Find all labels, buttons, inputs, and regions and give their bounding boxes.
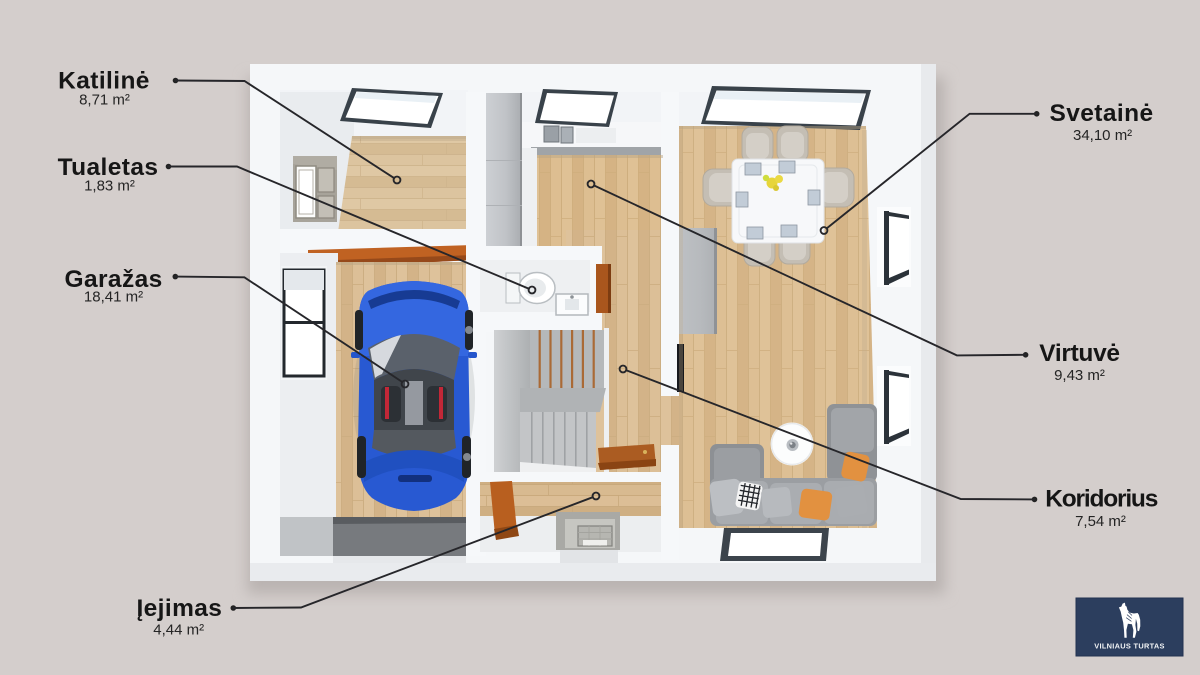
svg-text:9,43 m²: 9,43 m²: [1054, 367, 1105, 384]
svg-text:Įejimas: Įejimas: [136, 595, 222, 622]
svg-text:18,41 m²: 18,41 m²: [84, 289, 143, 306]
svg-text:4,44 m²: 4,44 m²: [153, 622, 204, 639]
svg-text:8,71 m²: 8,71 m²: [79, 92, 130, 109]
svg-text:7,54 m²: 7,54 m²: [1075, 513, 1126, 530]
svg-text:34,10 m²: 34,10 m²: [1073, 127, 1132, 144]
svg-text:Svetainė: Svetainė: [1050, 100, 1154, 127]
svg-text:VILNIAUS TURTAS: VILNIAUS TURTAS: [1094, 642, 1164, 651]
svg-text:1,83 m²: 1,83 m²: [84, 178, 135, 195]
svg-text:Virtuvė: Virtuvė: [1039, 340, 1120, 367]
svg-text:Koridorius: Koridorius: [1045, 486, 1157, 513]
svg-text:Katilinė: Katilinė: [58, 68, 150, 95]
